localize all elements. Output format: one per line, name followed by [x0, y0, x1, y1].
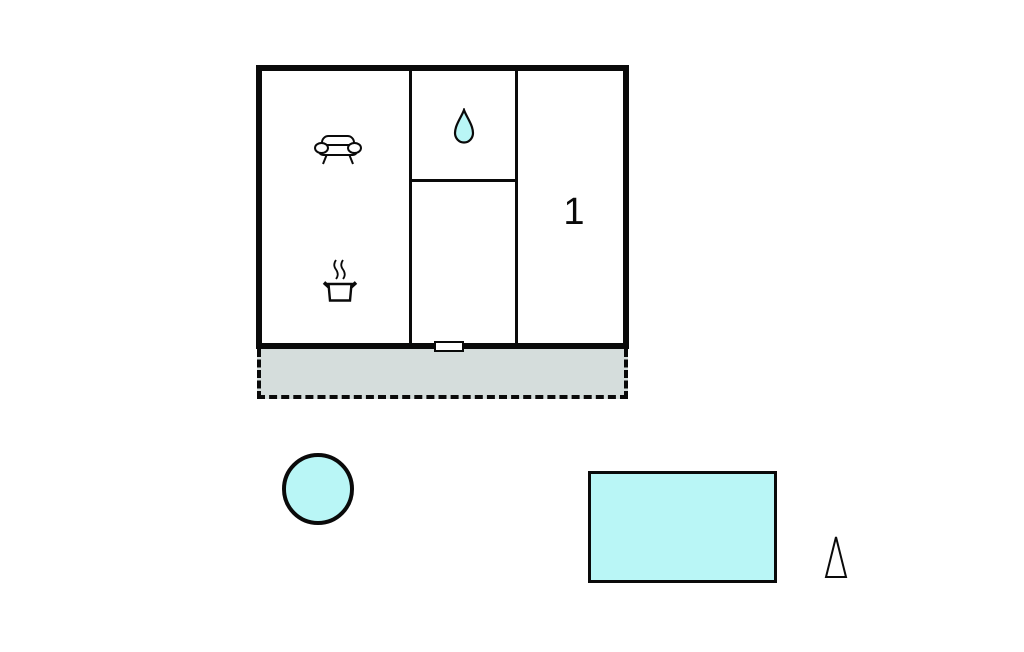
terrace-area [257, 349, 628, 399]
sofa-icon [314, 133, 362, 167]
cooking-pot-icon [322, 257, 358, 305]
pool-rectangle [588, 471, 777, 583]
interior-wall [412, 179, 515, 182]
water-drop-icon [452, 108, 476, 144]
north-arrow-icon [823, 534, 849, 580]
bedroom-number-label: 1 [556, 193, 592, 233]
door-opening [434, 341, 464, 352]
hot-tub-circle [282, 453, 354, 525]
floor-plan-canvas: 1 [0, 0, 1024, 652]
interior-wall [409, 71, 412, 344]
interior-wall [515, 71, 518, 344]
